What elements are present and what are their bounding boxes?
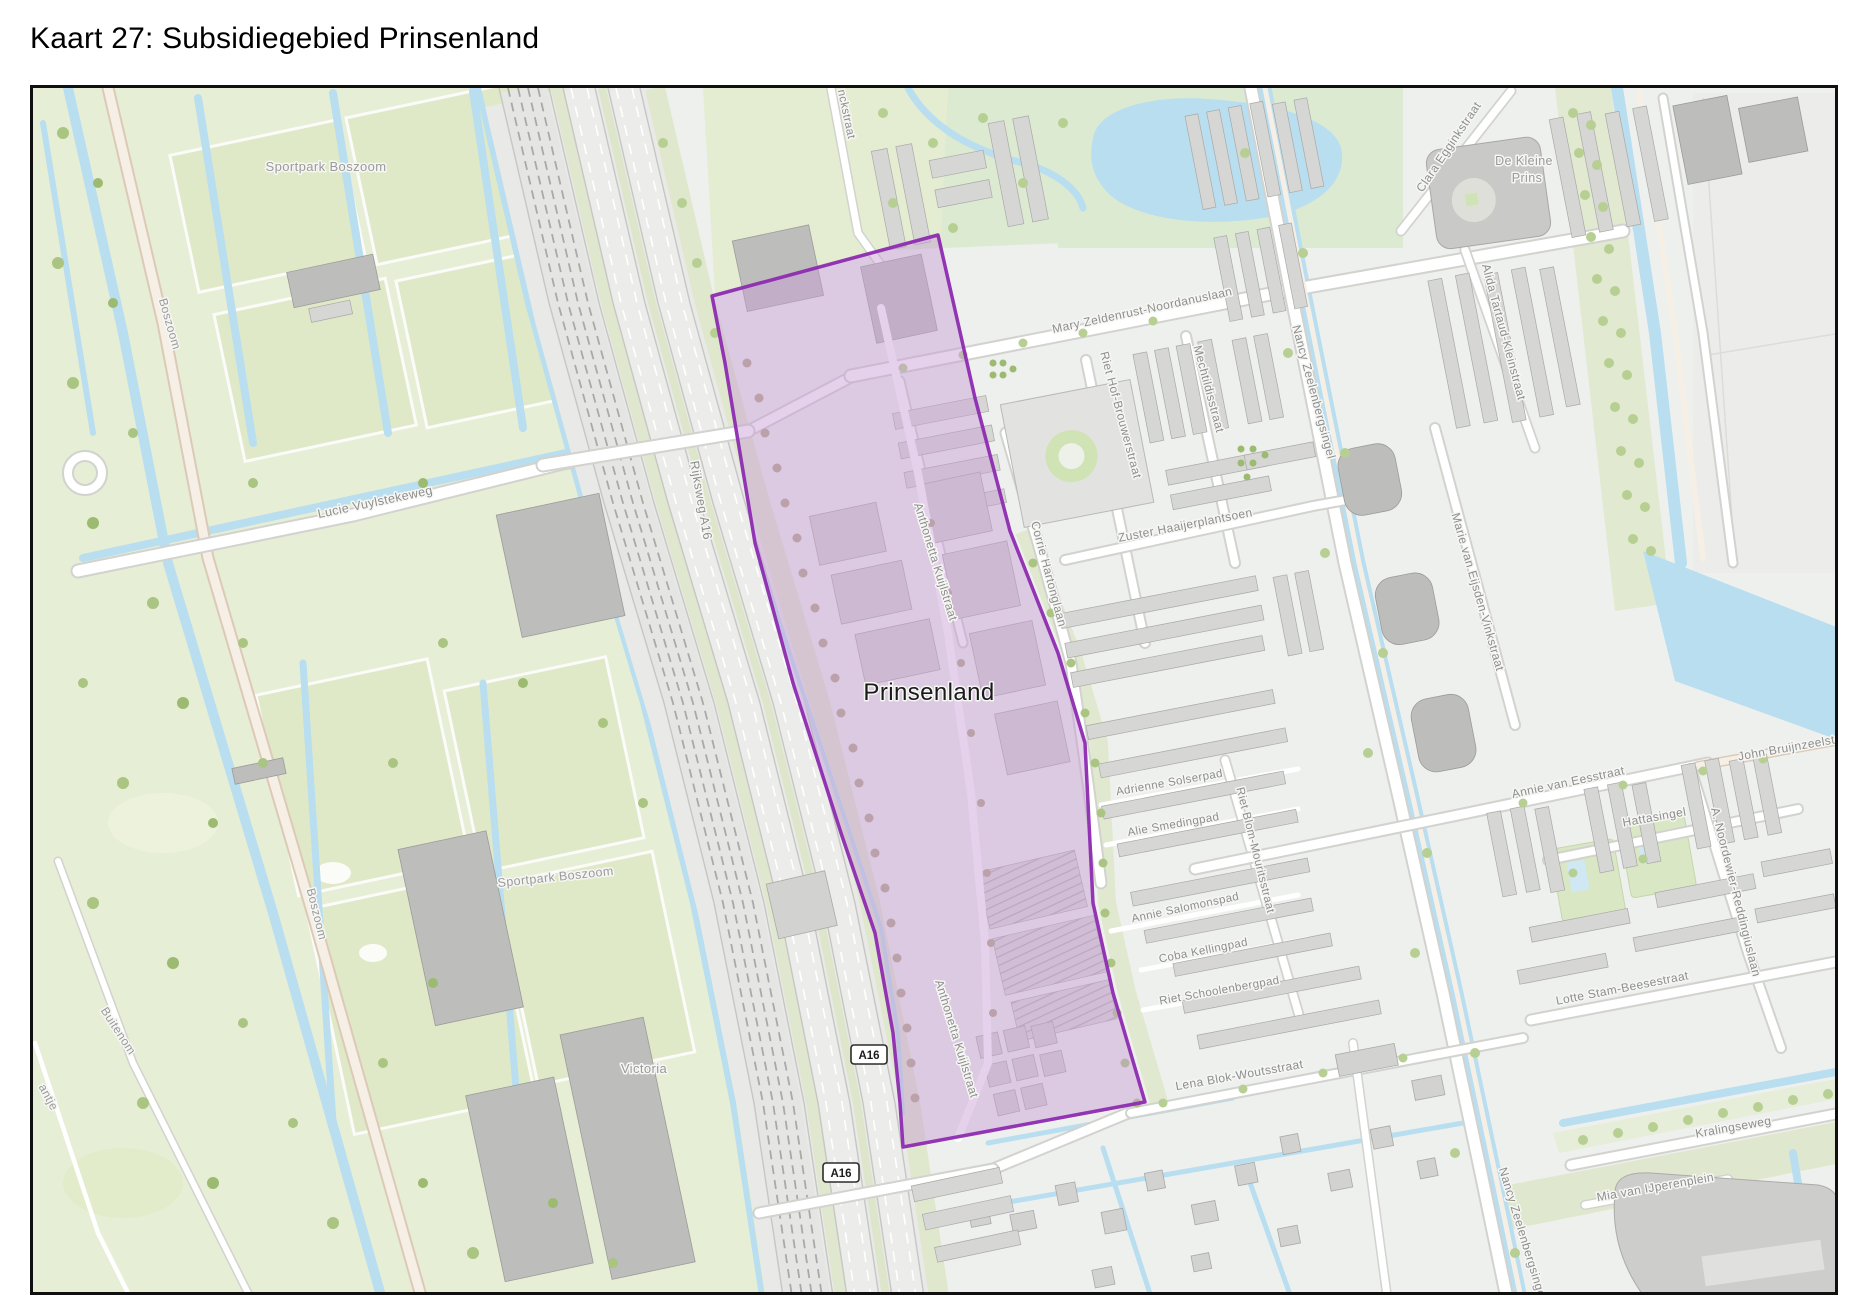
a16-shield-text: A16 (858, 1050, 879, 1062)
area-label-prinsenland: Prinsenland (863, 679, 994, 706)
a16-shield-lower: A16 (823, 1163, 859, 1182)
area-label-victoria: Victoria (621, 1061, 668, 1076)
document-page: Kaart 27: Subsidiegebied Prinsenland (0, 0, 1849, 1307)
area-label-sportpark-boszoom-north: Sportpark Boszoom (266, 159, 387, 174)
a16-shield-text: A16 (830, 1168, 851, 1180)
page-title: Kaart 27: Subsidiegebied Prinsenland (30, 22, 539, 56)
a16-shield-upper: A16 (851, 1045, 887, 1064)
map-figure: Sportpark BoszoomBoszoomBoszoomBuitenoma… (30, 85, 1838, 1295)
area-label-de-kleine-prins-line2: Prins (1512, 171, 1542, 185)
map-canvas: Sportpark BoszoomBoszoomBoszoomBuitenoma… (33, 88, 1835, 1292)
area-label-de-kleine-prins-line1: De Kleine (1495, 154, 1553, 168)
